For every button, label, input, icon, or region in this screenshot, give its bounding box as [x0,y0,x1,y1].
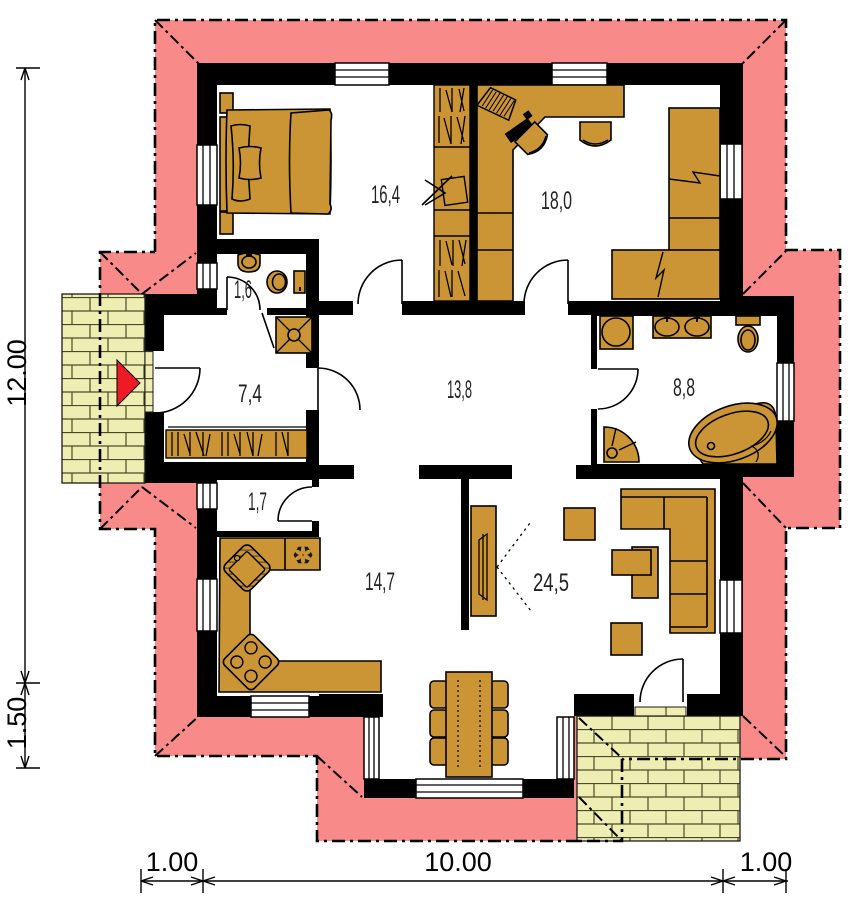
svg-text:8,8: 8,8 [673,374,695,402]
svg-text:1.50: 1.50 [2,697,32,750]
svg-text:10.00: 10.00 [424,847,492,877]
svg-text:12.00: 12.00 [2,339,32,407]
svg-text:24,5: 24,5 [533,569,569,597]
svg-text:7,4: 7,4 [238,380,262,408]
svg-text:1,7: 1,7 [248,488,267,516]
svg-text:13,8: 13,8 [447,376,472,404]
svg-text:14,7: 14,7 [365,568,395,596]
svg-text:16,4: 16,4 [371,181,400,209]
svg-text:1.00: 1.00 [146,847,199,877]
svg-text:1.00: 1.00 [740,847,793,877]
svg-text:18,0: 18,0 [541,187,572,215]
svg-text:1,6: 1,6 [234,276,252,304]
